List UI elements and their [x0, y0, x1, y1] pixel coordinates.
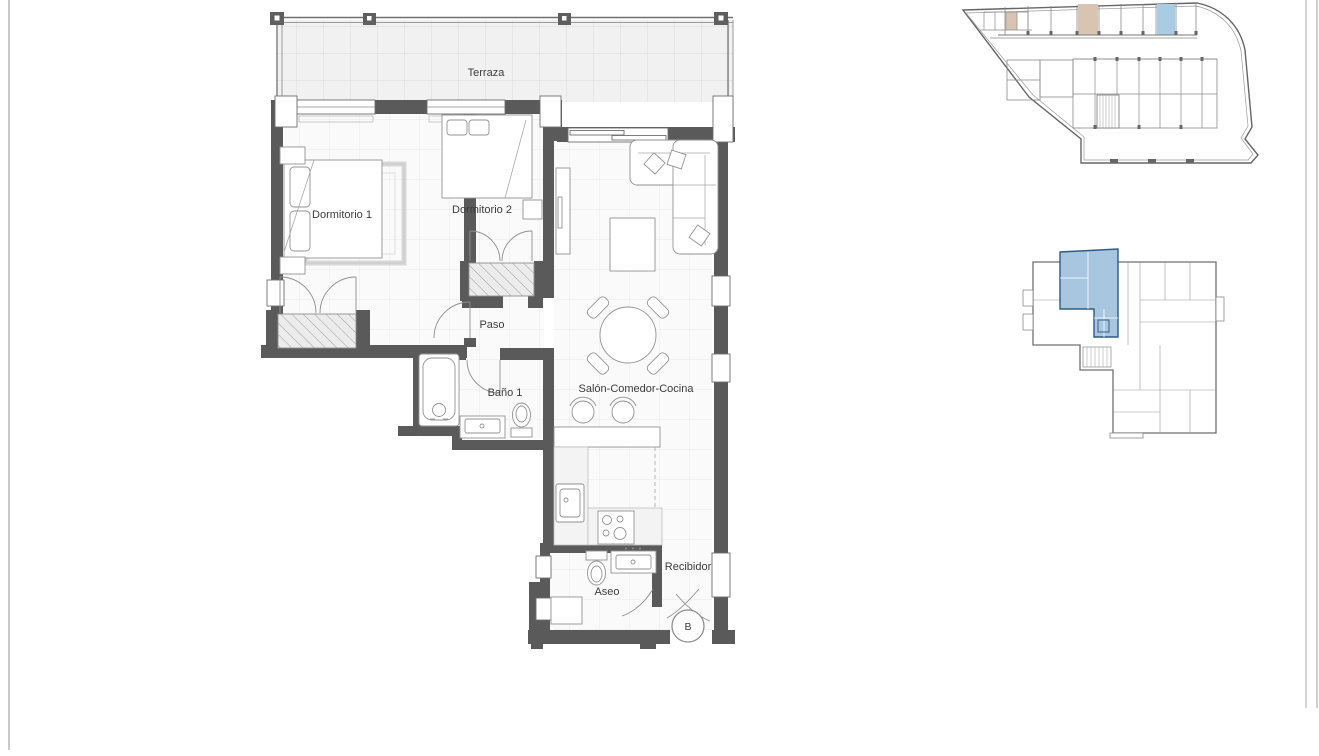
entrance-marker-label: B [684, 621, 691, 633]
room-label-dormitorio-2: Dormitorio 2 [452, 204, 512, 216]
highlighted-storage-space [1078, 4, 1098, 35]
entrance-marker: B [672, 610, 704, 642]
highlighted-parking-space [1157, 4, 1175, 35]
room-label-paso: Paso [479, 319, 504, 331]
page-edge-line-right-outer [1316, 0, 1318, 708]
page-edge-line-left [8, 0, 10, 750]
garage-stairs [1097, 95, 1119, 128]
room-label-aseo: Aseo [594, 586, 619, 598]
garage-location-plan [950, 0, 1262, 175]
room-label-salon: Salón-Comedor-Cocina [579, 383, 695, 395]
room-label-recibidor: Recibidor [665, 561, 712, 573]
key-plan-outline [1023, 262, 1224, 438]
page-edge-line-right-inner [1305, 0, 1307, 708]
room-label-dormitorio-1: Dormitorio 1 [312, 209, 372, 221]
building-key-plan [1018, 243, 1258, 448]
room-label-bano-1: Baño 1 [488, 387, 523, 399]
room-label-terraza: Terraza [468, 67, 506, 79]
apartment-floor-plan: Terraza Dormitorio 1 Dormitorio 2 Paso B… [258, 0, 740, 660]
key-plan-stairs [1083, 347, 1111, 367]
